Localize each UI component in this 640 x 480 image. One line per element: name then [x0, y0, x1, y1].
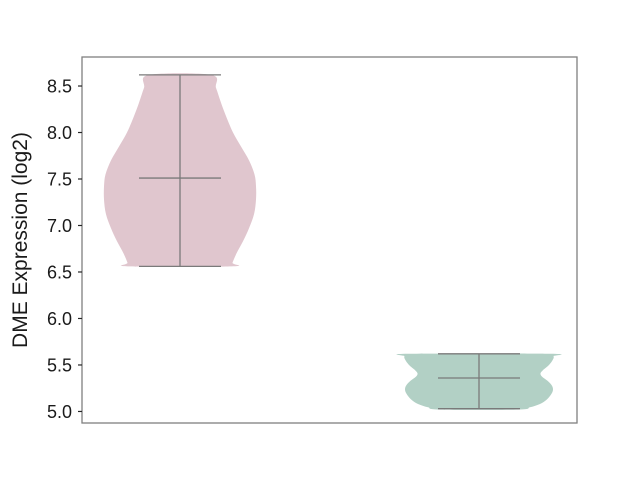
y-tick-label: 8.0	[47, 123, 72, 143]
y-tick-label: 7.0	[47, 216, 72, 236]
y-tick-label: 6.0	[47, 309, 72, 329]
y-tick-label: 5.0	[47, 402, 72, 422]
y-tick-label: 6.5	[47, 262, 72, 282]
y-tick-label: 5.5	[47, 355, 72, 375]
violin-plot: 5.05.56.06.57.07.58.08.5 DME Expression …	[0, 0, 640, 480]
figure: 5.05.56.06.57.07.58.08.5 DME Expression …	[0, 0, 640, 480]
y-tick-label: 7.5	[47, 169, 72, 189]
chart-generated-layer: 5.05.56.06.57.07.58.08.5	[47, 57, 577, 423]
y-axis-title: DME Expression (log2)	[9, 132, 32, 348]
y-tick-label: 8.5	[47, 76, 72, 96]
